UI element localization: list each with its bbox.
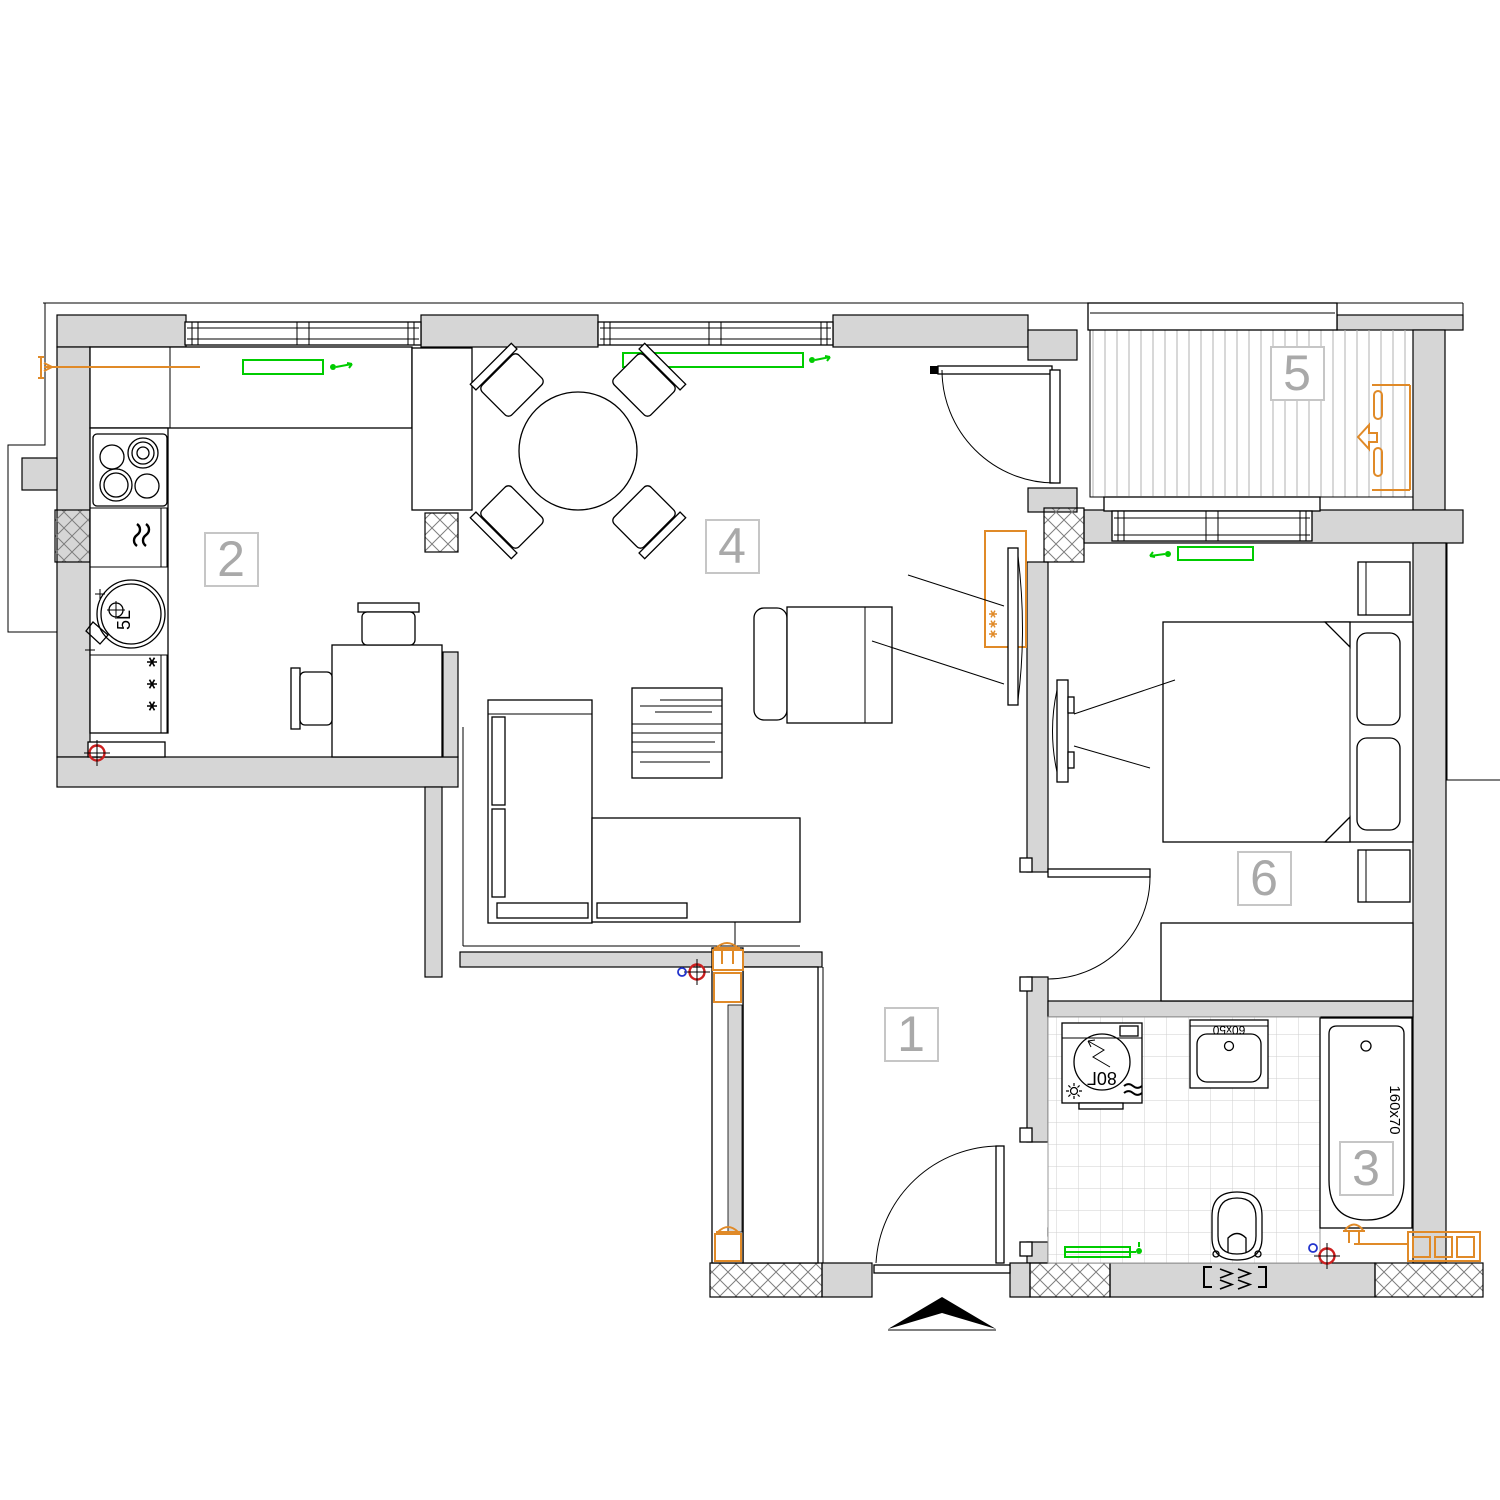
wall-top-right bbox=[833, 315, 1028, 347]
tv-viewing-lines bbox=[1074, 680, 1175, 768]
room-number: 3 bbox=[1352, 1140, 1380, 1196]
wall-top-far-right bbox=[1337, 315, 1463, 330]
wardrobe bbox=[1161, 923, 1413, 1001]
duct-shaft bbox=[712, 943, 743, 1263]
kitchen-plinth bbox=[88, 742, 165, 757]
hatch-left-wall bbox=[55, 510, 90, 562]
wall-right bbox=[1413, 543, 1446, 1263]
bathtub: 160x70 bbox=[1320, 1018, 1412, 1228]
hatch-bottom-mid bbox=[1030, 1263, 1110, 1297]
floor-plan-canvas: 5L bbox=[0, 0, 1500, 1500]
room-label-3: 3 bbox=[1340, 1140, 1393, 1196]
room-label-4: 4 bbox=[706, 518, 759, 574]
wall-nook-bottom bbox=[460, 952, 822, 967]
wall-nook-vertical bbox=[425, 787, 442, 977]
kitchen-table-and-chairs bbox=[291, 603, 442, 757]
balcony bbox=[1088, 303, 1413, 497]
balcony-railing bbox=[1088, 303, 1337, 330]
dining-table-set bbox=[470, 343, 685, 558]
pillow bbox=[1357, 738, 1400, 830]
wall-bottom-a bbox=[822, 1263, 872, 1297]
room-number: 5 bbox=[1283, 345, 1311, 401]
kitchen-window bbox=[185, 322, 421, 345]
hatch-bottom-right bbox=[1375, 1263, 1483, 1297]
bath-utility-connection bbox=[1343, 1225, 1480, 1262]
hatch-bottom-left bbox=[710, 1263, 822, 1297]
dining-chair bbox=[470, 482, 547, 559]
wall-balcony-corner bbox=[1028, 330, 1077, 360]
hatch-kitchen-pillar bbox=[425, 513, 458, 552]
room-label-1: 1 bbox=[885, 1006, 938, 1062]
bedroom-light-fixture bbox=[1150, 547, 1253, 560]
bedroom-window bbox=[1104, 497, 1320, 541]
washbasin: 60x50 bbox=[1190, 1020, 1268, 1088]
room-number: 1 bbox=[897, 1006, 925, 1062]
bedroom-door bbox=[1020, 858, 1150, 991]
room-number: 6 bbox=[1250, 850, 1278, 906]
room-label-2: 2 bbox=[205, 531, 258, 587]
wall-hall-bath-upper bbox=[1027, 977, 1048, 1142]
room-label-5: 5 bbox=[1271, 345, 1324, 401]
bedroom-tv-icon bbox=[1053, 680, 1176, 782]
floor-plan-drawing: 5L bbox=[0, 0, 1500, 1500]
dining-chair bbox=[609, 343, 686, 420]
wall-bottom-b bbox=[1010, 1263, 1030, 1297]
boiler-capacity-label: 80Г bbox=[1087, 1068, 1117, 1088]
dining-table bbox=[519, 392, 637, 510]
wall-top-left bbox=[57, 315, 186, 347]
wall-left-stub bbox=[22, 458, 57, 490]
bathtub-size-label: 160x70 bbox=[1386, 1085, 1403, 1134]
wall-living-bedroom bbox=[1027, 562, 1048, 872]
wall-top-mid bbox=[421, 315, 598, 347]
nightstand-bottom bbox=[1358, 850, 1410, 902]
room-label-6: 6 bbox=[1238, 850, 1291, 906]
dining-chair bbox=[470, 343, 547, 420]
armchair bbox=[754, 607, 892, 723]
wall-bathroom-top bbox=[1048, 1001, 1413, 1017]
balcony-decking bbox=[1090, 330, 1413, 497]
toilet bbox=[1212, 1192, 1262, 1260]
washbasin-size-label: 60x50 bbox=[1212, 1023, 1245, 1037]
entrance-door bbox=[874, 1146, 1010, 1273]
entrance-arrow-icon bbox=[888, 1297, 996, 1330]
boiler-washer-icon: 80Г bbox=[1062, 1023, 1142, 1109]
living-dining bbox=[463, 343, 1026, 947]
wall-kitchen-bottom bbox=[57, 757, 458, 787]
double-bed bbox=[1163, 622, 1413, 842]
room-number: 4 bbox=[718, 518, 746, 574]
pillow bbox=[1357, 633, 1400, 725]
wall-kitchen-stub bbox=[443, 652, 458, 757]
bedroom bbox=[1053, 547, 1414, 1001]
drawer-chest bbox=[632, 688, 722, 778]
hall-closet bbox=[743, 967, 818, 1263]
living-window bbox=[598, 322, 833, 345]
living-tv-icon bbox=[872, 531, 1026, 705]
nightstand-top bbox=[1358, 562, 1410, 615]
wall-balcony-right bbox=[1413, 330, 1445, 510]
wall-bottom-c bbox=[1110, 1263, 1375, 1297]
dining-chair bbox=[609, 482, 686, 559]
balcony-door bbox=[930, 366, 1060, 483]
kitchen-tall-unit bbox=[412, 348, 472, 510]
room-number: 2 bbox=[217, 531, 245, 587]
sink-capacity-label: 5L bbox=[114, 610, 134, 630]
hatch-bedroom-pillar bbox=[1044, 508, 1084, 562]
